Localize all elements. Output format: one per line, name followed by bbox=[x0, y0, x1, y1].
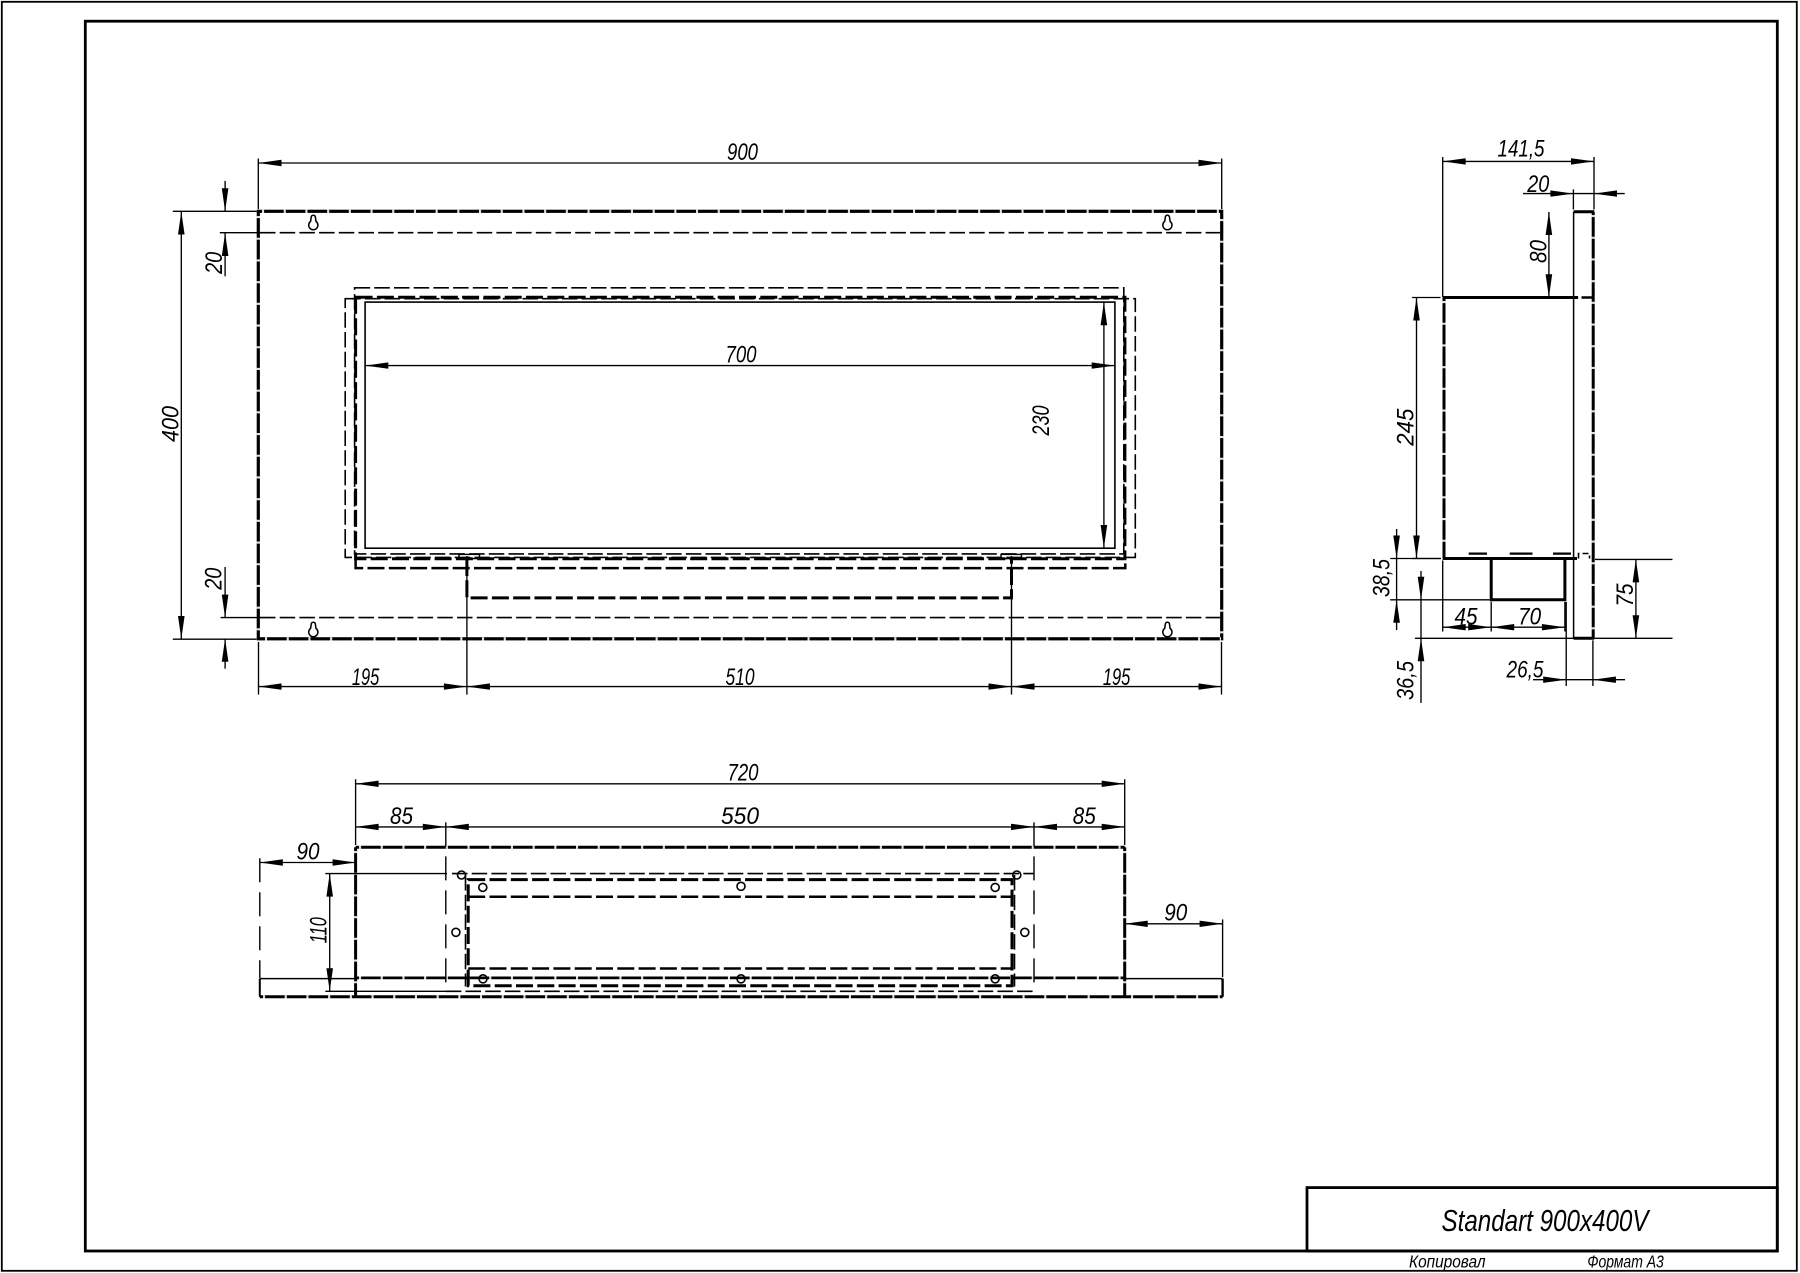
svg-text:700: 700 bbox=[726, 341, 758, 368]
svg-text:75: 75 bbox=[1612, 583, 1639, 607]
svg-text:85: 85 bbox=[390, 803, 414, 830]
svg-text:20: 20 bbox=[201, 251, 228, 274]
svg-text:400: 400 bbox=[157, 405, 184, 442]
svg-text:Копировал: Копировал bbox=[1409, 1252, 1486, 1272]
svg-text:90: 90 bbox=[297, 838, 321, 865]
svg-text:195: 195 bbox=[352, 664, 380, 691]
svg-text:141,5: 141,5 bbox=[1498, 135, 1546, 162]
svg-text:38,5: 38,5 bbox=[1369, 558, 1396, 597]
svg-text:85: 85 bbox=[1073, 803, 1097, 830]
svg-text:45: 45 bbox=[1455, 604, 1479, 631]
svg-text:195: 195 bbox=[1103, 664, 1131, 691]
svg-text:Standart 900x400V: Standart 900x400V bbox=[1442, 1203, 1652, 1238]
svg-text:70: 70 bbox=[1518, 604, 1542, 631]
svg-text:720: 720 bbox=[728, 760, 760, 787]
svg-text:80: 80 bbox=[1526, 239, 1553, 263]
svg-text:20: 20 bbox=[201, 567, 228, 590]
svg-text:90: 90 bbox=[1164, 900, 1188, 927]
svg-text:Формат А3: Формат А3 bbox=[1587, 1252, 1664, 1272]
svg-text:550: 550 bbox=[721, 803, 760, 830]
svg-text:230: 230 bbox=[1028, 405, 1055, 436]
svg-text:510: 510 bbox=[726, 664, 755, 691]
svg-text:36,5: 36,5 bbox=[1393, 660, 1420, 700]
svg-text:110: 110 bbox=[306, 917, 333, 943]
svg-text:20: 20 bbox=[1526, 171, 1549, 198]
svg-text:26,5: 26,5 bbox=[1506, 656, 1544, 683]
svg-text:245: 245 bbox=[1393, 408, 1420, 447]
svg-text:900: 900 bbox=[727, 139, 759, 166]
